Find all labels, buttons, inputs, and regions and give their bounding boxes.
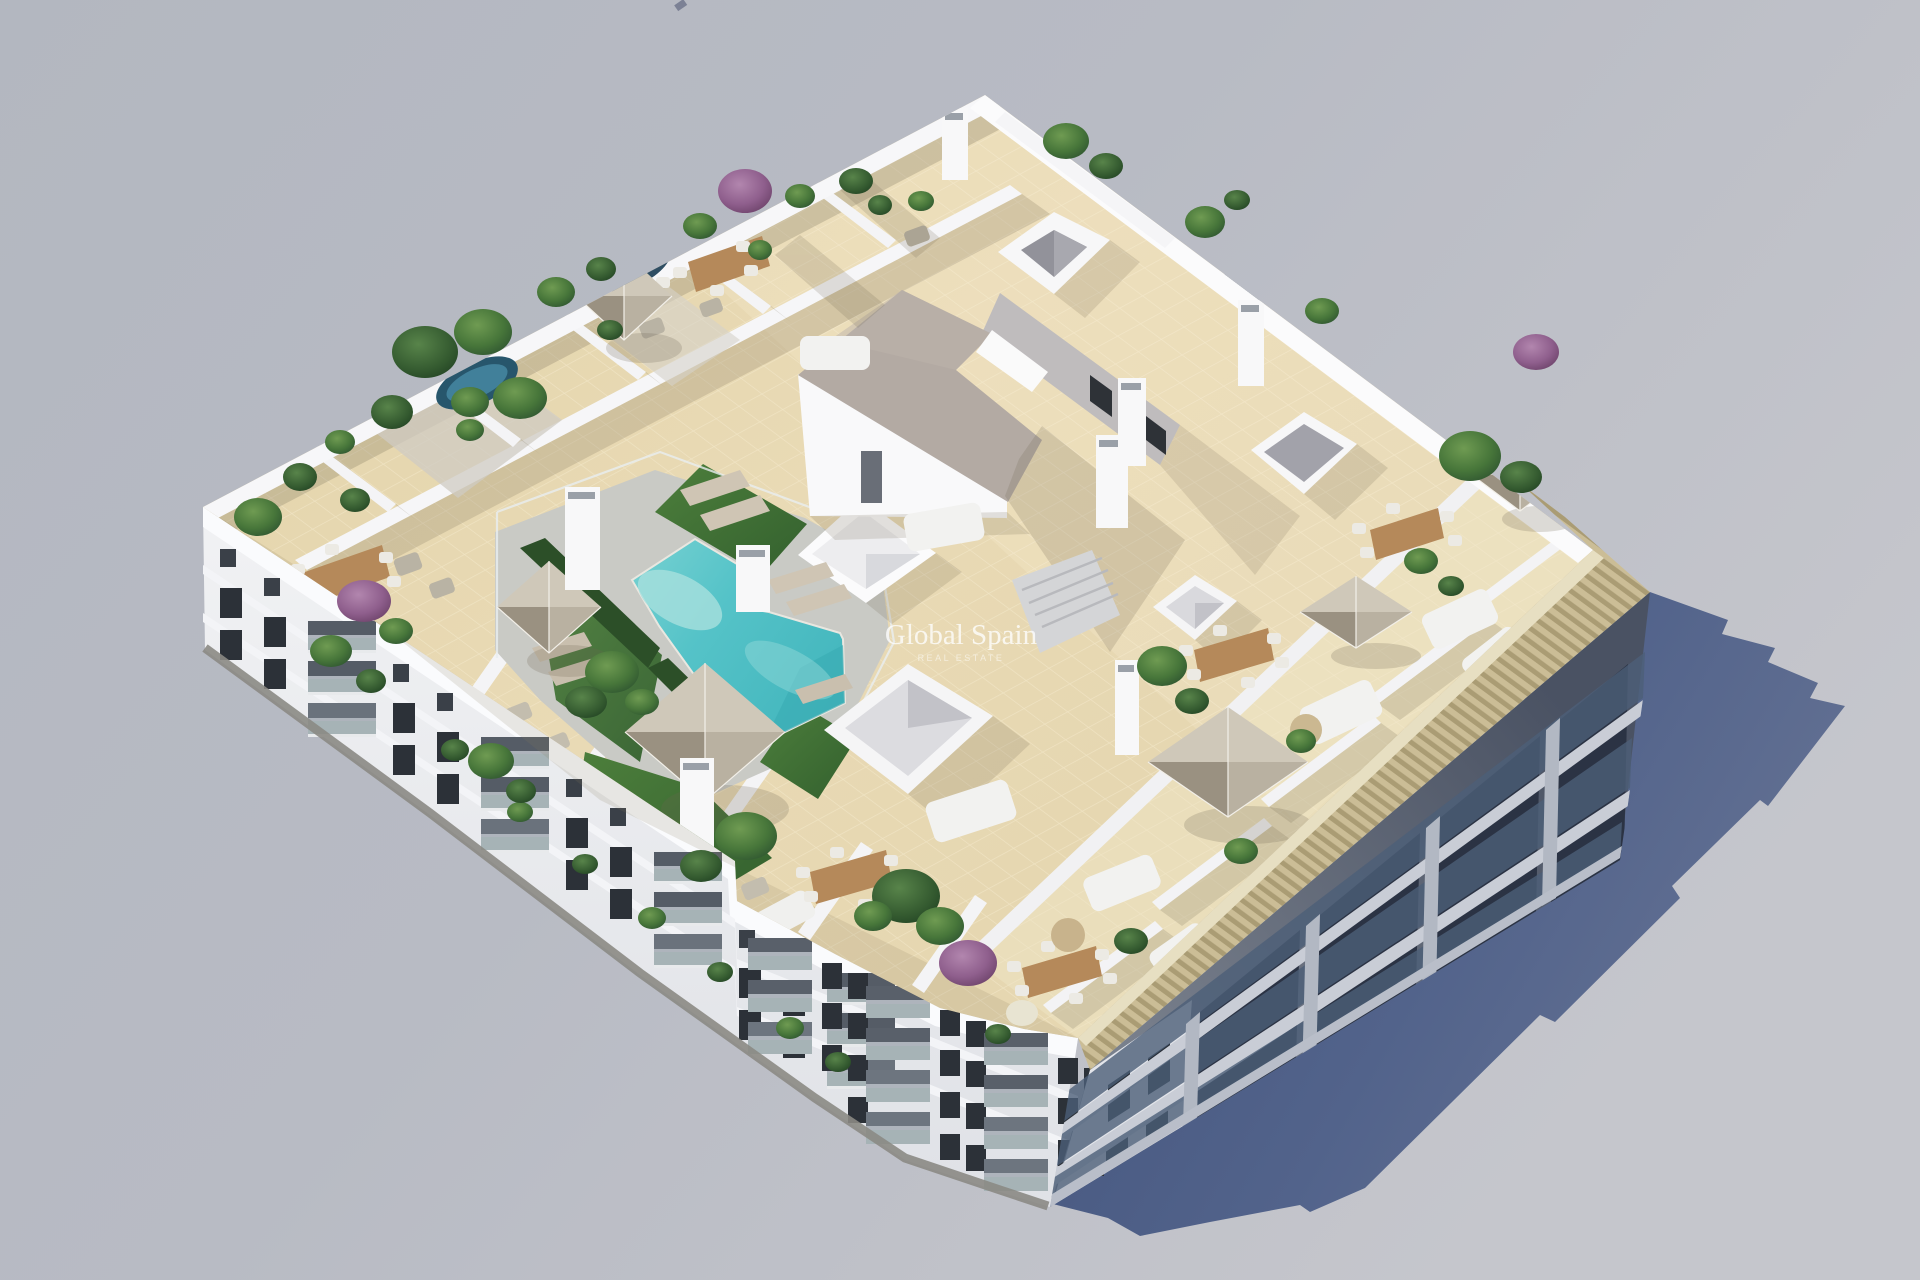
svg-text:Global Spain: Global Spain <box>885 619 1038 651</box>
svg-text:REAL ESTATE: REAL ESTATE <box>918 653 1005 663</box>
